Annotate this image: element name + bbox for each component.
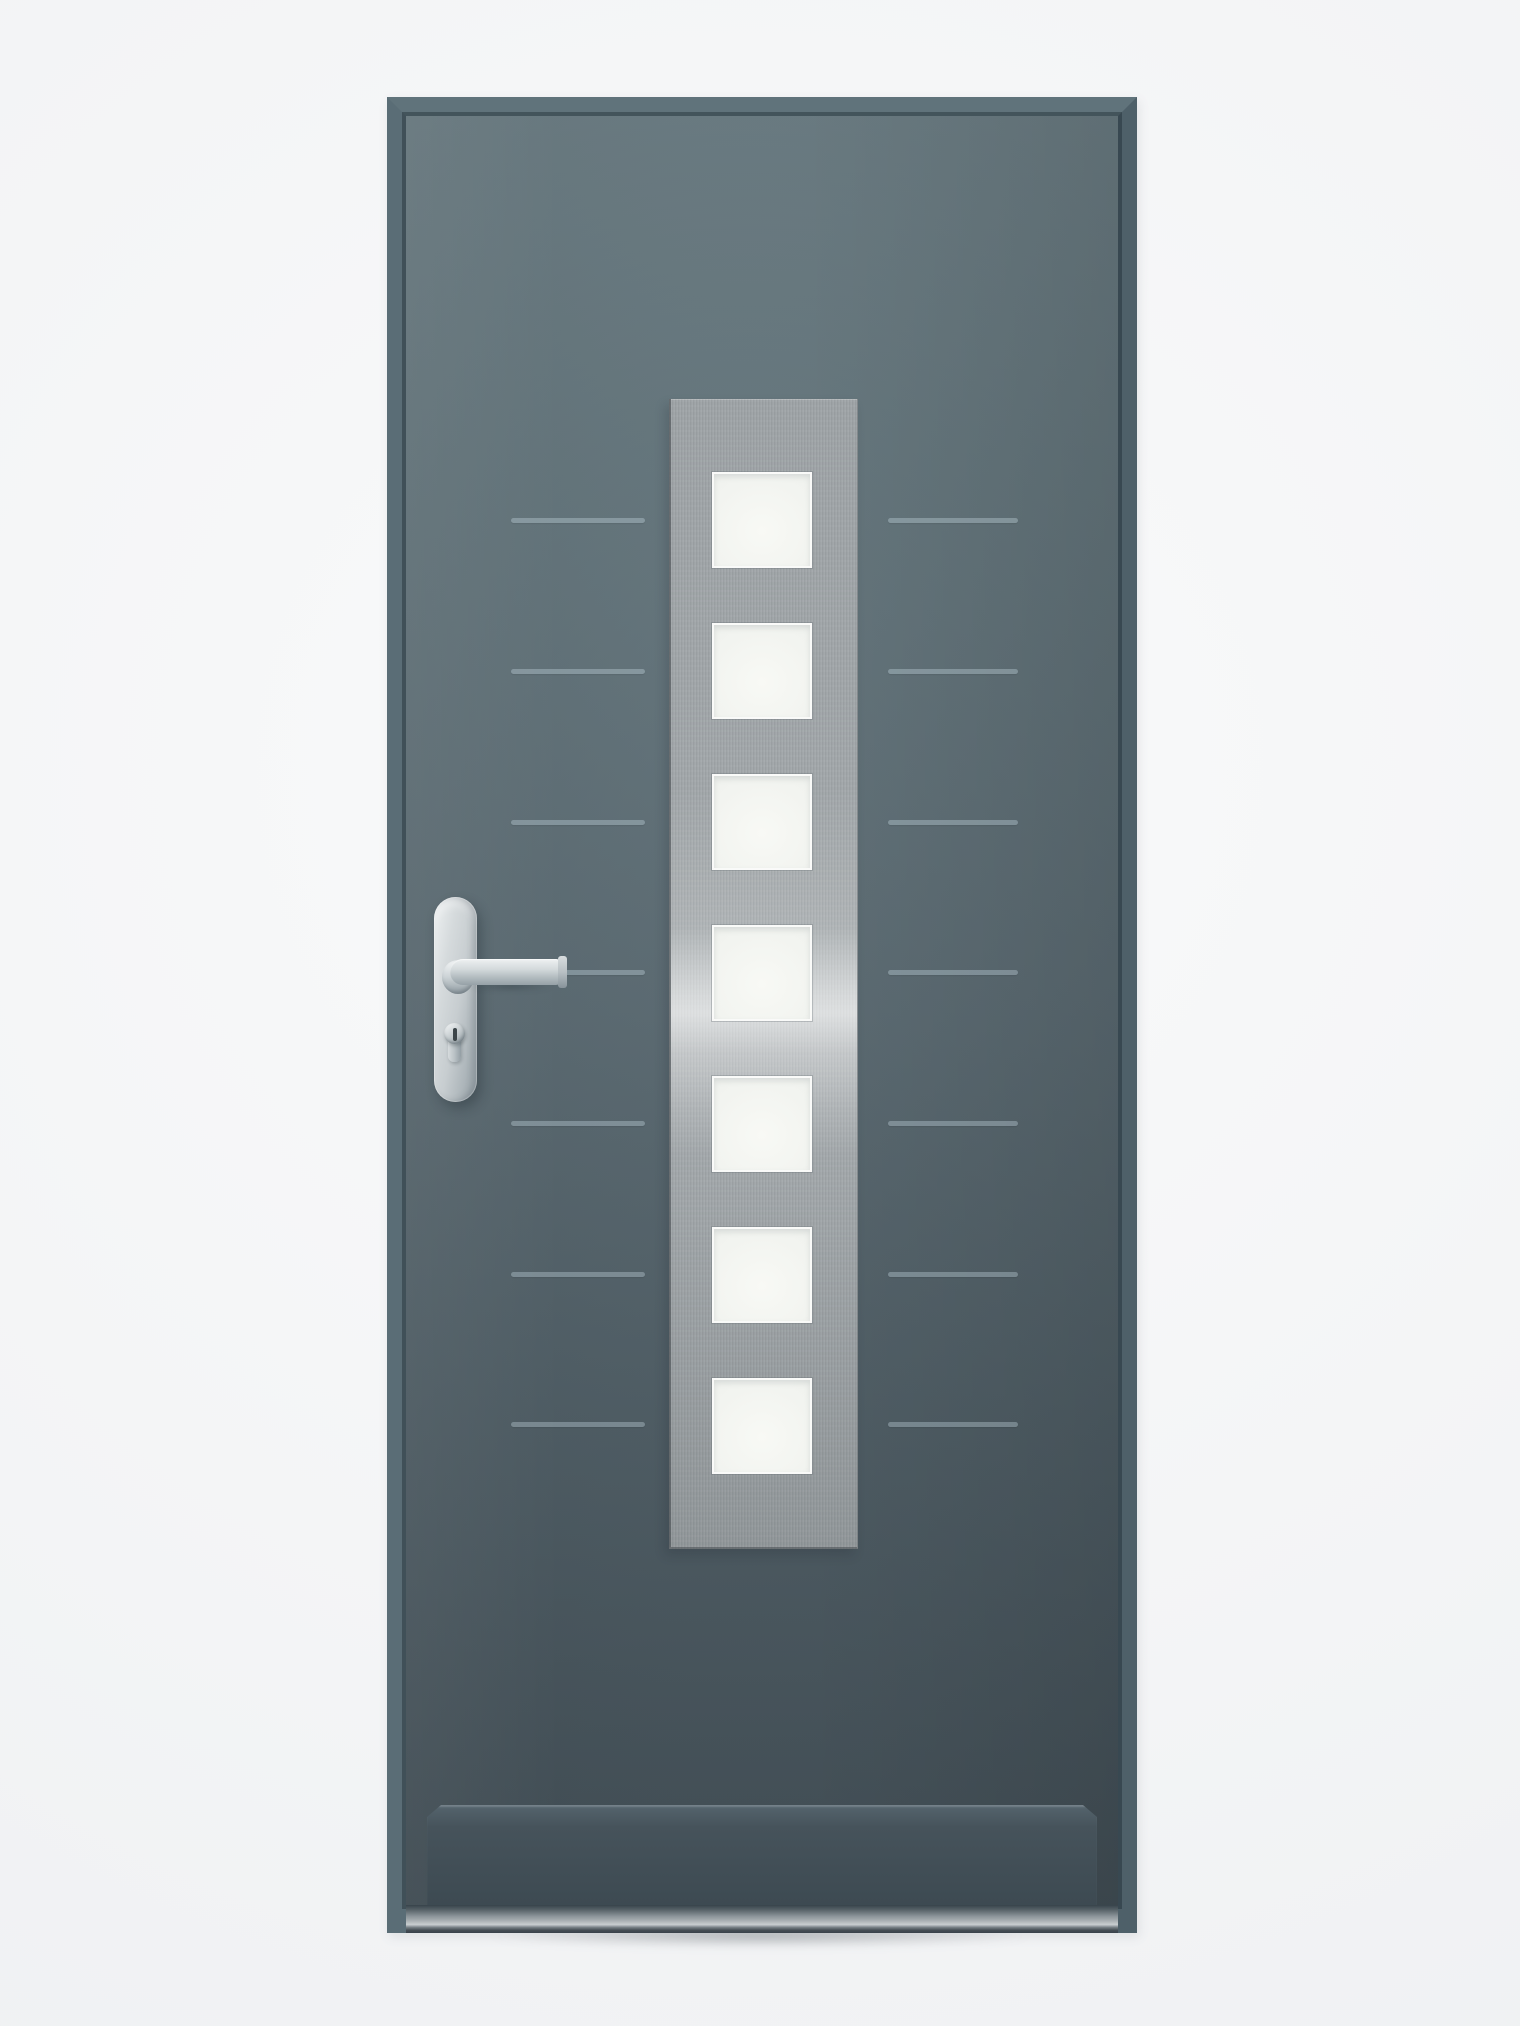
- door-leaf: [406, 116, 1118, 1905]
- lever-handle: [434, 950, 570, 996]
- glass-square: [712, 1227, 812, 1323]
- groove-line: [511, 820, 645, 825]
- lever-bar: [450, 959, 560, 985]
- groove-line: [888, 970, 1018, 975]
- glass-square: [712, 472, 812, 568]
- glazing-panel: [669, 399, 858, 1549]
- glass-square: [712, 925, 812, 1021]
- euro-cylinder-lock: [444, 1023, 466, 1065]
- groove-line: [511, 518, 645, 523]
- glass-square: [712, 1378, 812, 1474]
- groove-line: [511, 1121, 645, 1126]
- product-photo-stage: [0, 0, 1520, 2026]
- glass-square: [712, 774, 812, 870]
- groove-line: [888, 669, 1018, 674]
- groove-line: [888, 518, 1018, 523]
- groove-line: [888, 1422, 1018, 1427]
- groove-line: [511, 1422, 645, 1427]
- glass-square: [712, 1076, 812, 1172]
- lever-end-cap: [558, 956, 567, 988]
- threshold-sill: [406, 1905, 1118, 1933]
- groove-line: [888, 820, 1018, 825]
- glass-square: [712, 623, 812, 719]
- keyhole-slot: [453, 1028, 457, 1041]
- groove-line: [511, 1272, 645, 1277]
- groove-line: [888, 1121, 1018, 1126]
- groove-line: [888, 1272, 1018, 1277]
- kick-plate: [427, 1805, 1097, 1905]
- handle-backplate: [434, 897, 477, 1102]
- groove-line: [511, 669, 645, 674]
